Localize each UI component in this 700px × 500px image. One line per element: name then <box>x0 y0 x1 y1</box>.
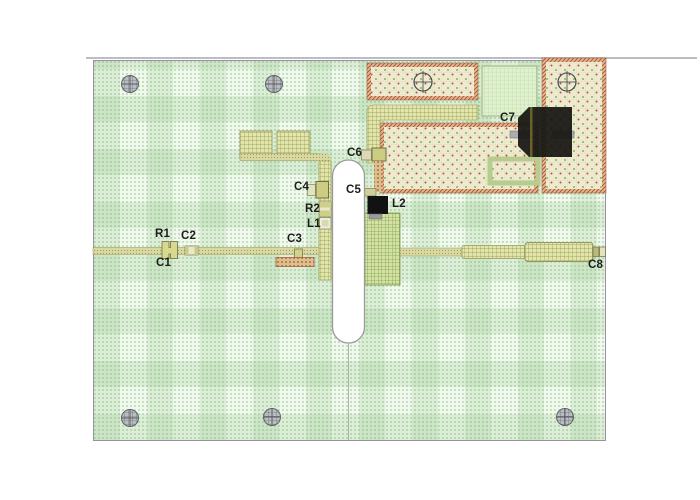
component-c4[interactable] <box>308 182 329 199</box>
main-input-trace[interactable] <box>93 248 319 255</box>
refdes-label-r1[interactable]: R1 <box>155 228 170 240</box>
refdes-label-c3[interactable]: C3 <box>287 233 302 245</box>
stub-pads[interactable] <box>240 131 310 157</box>
refdes-label-c7[interactable]: C7 <box>500 112 515 124</box>
pcb-artwork <box>0 0 700 500</box>
mounting-hole-icon <box>266 76 283 93</box>
routed-slot <box>333 160 365 440</box>
mounting-hole-icon <box>122 76 139 93</box>
mounting-hole-icon <box>264 409 281 426</box>
mounting-hole-icon <box>122 410 139 427</box>
refdes-label-c6[interactable]: C6 <box>347 147 362 159</box>
refdes-label-r2[interactable]: R2 <box>305 203 320 215</box>
refdes-label-c2[interactable]: C2 <box>181 230 196 242</box>
dense-copper-block[interactable] <box>365 213 400 285</box>
component-c8[interactable] <box>593 247 606 257</box>
component-l1[interactable] <box>320 218 332 230</box>
component-c6[interactable] <box>362 148 387 161</box>
pcb-layout-canvas: R1 C2 C1 C3 C4 R2 L1 C6 C5 L2 C7 C8 <box>0 0 700 500</box>
refdes-label-l1[interactable]: L1 <box>307 218 321 230</box>
component-c2[interactable] <box>185 246 198 255</box>
refdes-label-c5[interactable]: C5 <box>346 184 361 196</box>
component-r2[interactable] <box>320 202 332 216</box>
component-r1-c1[interactable] <box>162 242 178 259</box>
refdes-label-l2[interactable]: L2 <box>392 198 406 210</box>
c6-via-trace[interactable] <box>374 161 383 192</box>
stub-trace[interactable] <box>240 154 322 161</box>
refdes-label-c8[interactable]: C8 <box>588 259 603 271</box>
mounting-hole-icon <box>557 409 574 426</box>
refdes-label-c4[interactable]: C4 <box>294 181 309 193</box>
output-trace[interactable] <box>400 243 593 262</box>
refdes-label-c1[interactable]: C1 <box>156 257 171 269</box>
copper-region-top[interactable] <box>367 63 478 100</box>
